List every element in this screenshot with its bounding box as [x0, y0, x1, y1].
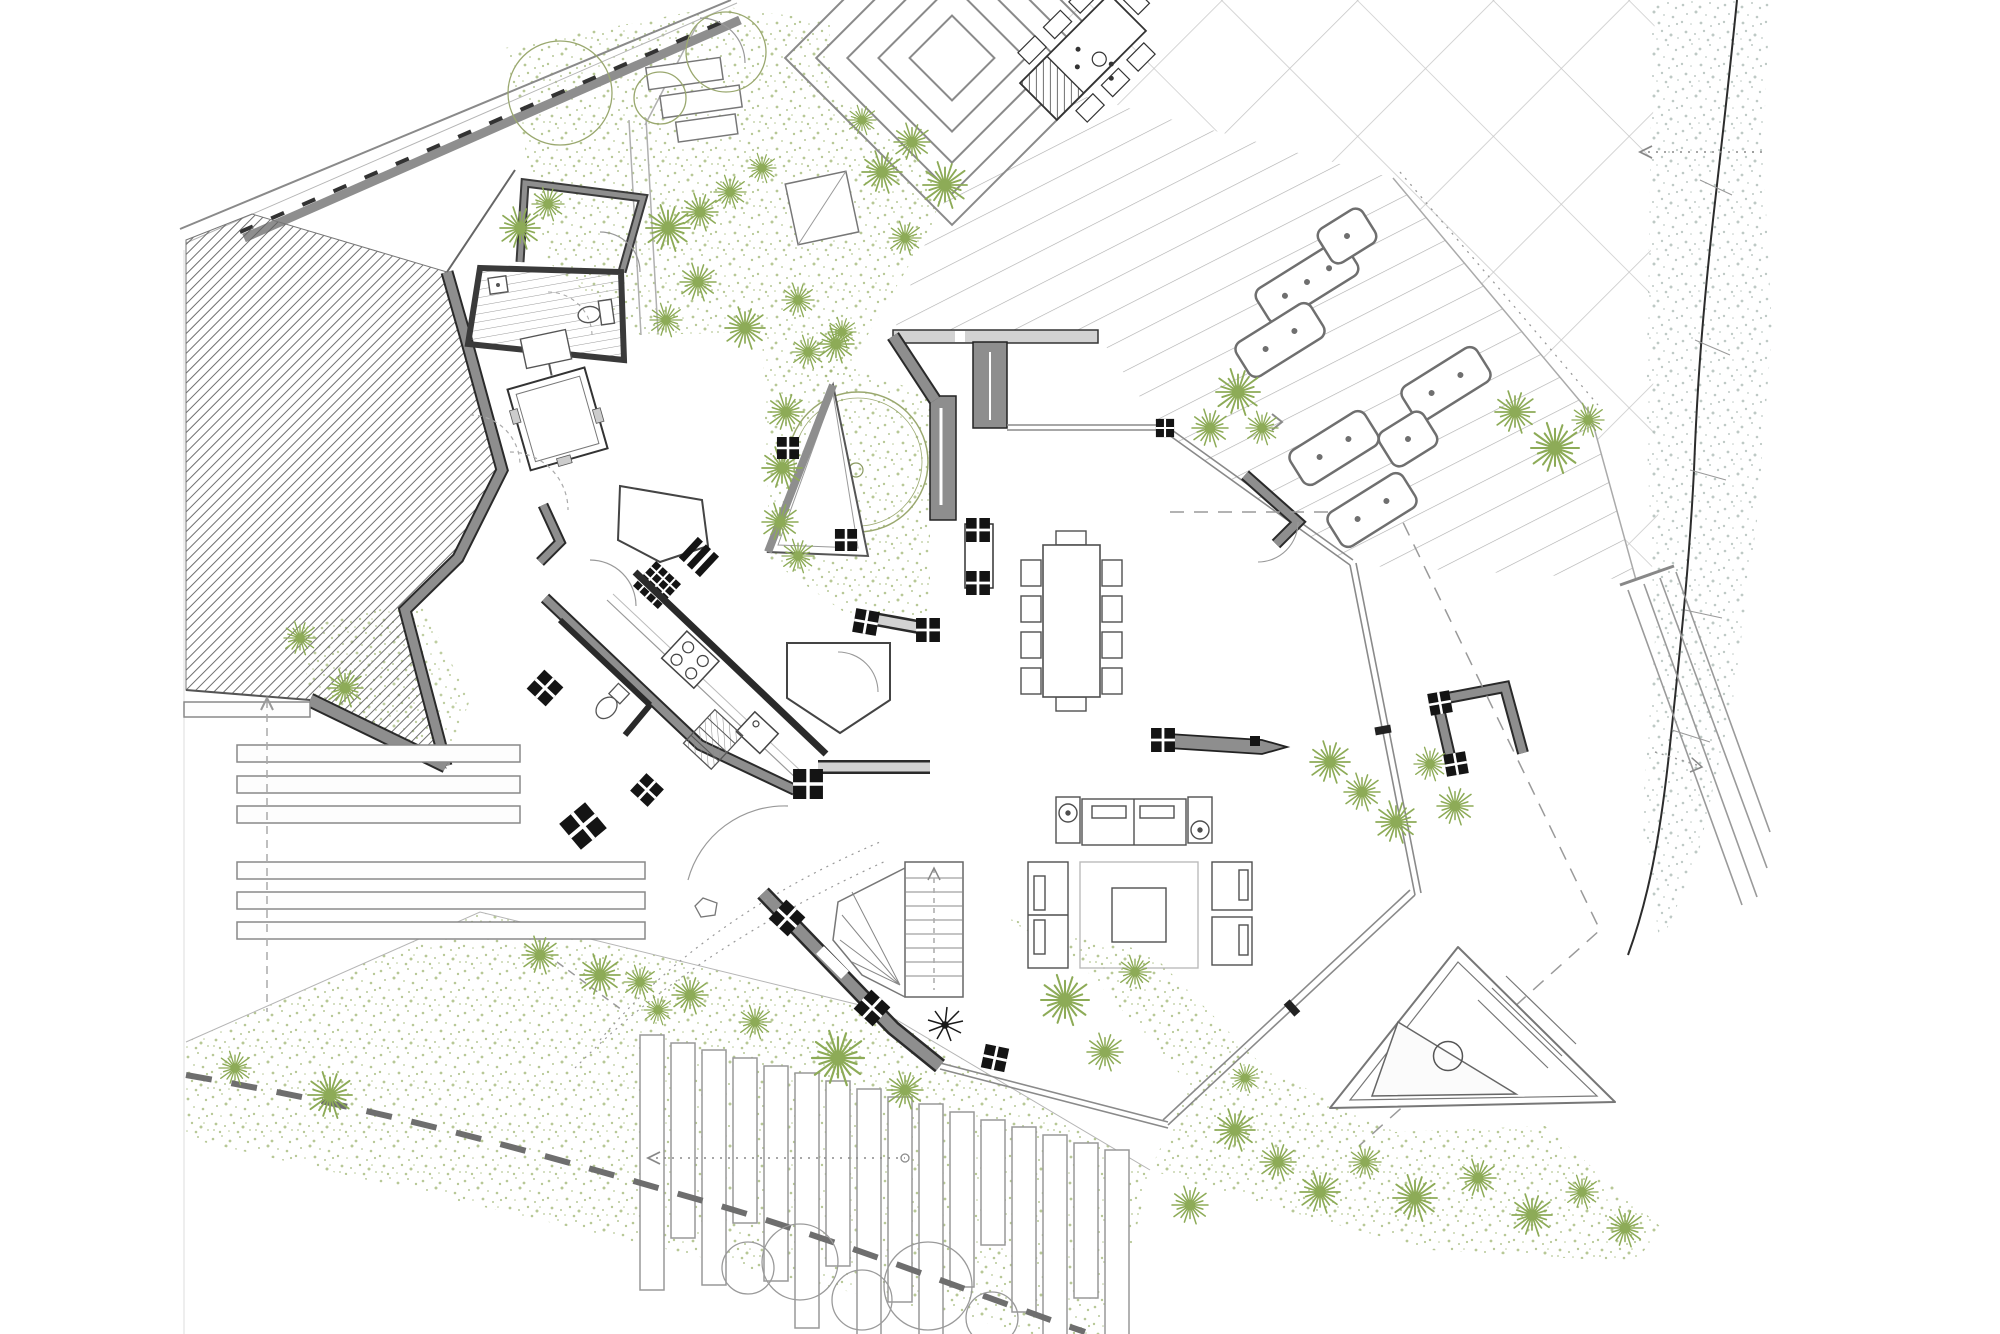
chair: [1056, 531, 1086, 545]
living-room: [1028, 797, 1252, 968]
floor-plan-page: [0, 0, 2000, 1334]
spa-feature: [1330, 947, 1615, 1108]
guest-bathroom: [468, 268, 624, 380]
coffee-table: [1112, 888, 1166, 942]
glass-cabin: [504, 366, 613, 562]
entry-mat-grille-icon: [633, 561, 681, 609]
chair: [1021, 596, 1041, 622]
chair: [1102, 596, 1122, 622]
chair: [1021, 560, 1041, 586]
chair: [1102, 560, 1122, 586]
chair: [1056, 697, 1086, 711]
wc-toilet-icon: [592, 683, 631, 723]
chair: [1021, 632, 1041, 658]
side-table: [1188, 797, 1212, 843]
chair: [1102, 668, 1122, 694]
vestibule: [787, 643, 890, 733]
kitchen-sink-icon: [736, 712, 778, 754]
chair: [1102, 632, 1122, 658]
basin-icon: [488, 276, 508, 294]
dining-table-group: [1021, 531, 1122, 711]
site-plan-drawing: [0, 0, 2000, 1334]
chair: [1021, 668, 1041, 694]
plant-icon: [928, 1007, 963, 1041]
dining-table: [1043, 545, 1100, 697]
paving-stone: [695, 898, 717, 917]
kitchen: [545, 572, 826, 790]
